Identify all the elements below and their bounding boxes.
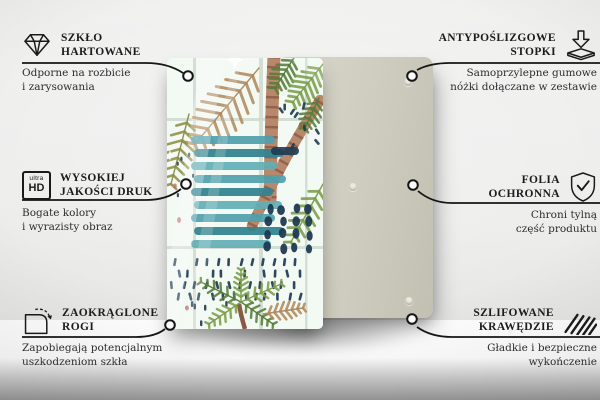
feature-desc-line: część produktu: [397, 223, 597, 237]
adhesive-feet-icon: [565, 30, 597, 61]
feature-desc-line: i wyrazisty obraz: [22, 221, 212, 235]
feature-title-line: KRAWĘDZIE: [473, 320, 554, 334]
feature-title-line: ANTYPOŚLIZGOWE: [439, 31, 556, 45]
feature-desc-line: wykończenie: [397, 356, 597, 370]
feature-title-line: SZKŁO: [61, 31, 141, 45]
ultra-hd-icon: ultra HD: [22, 171, 51, 200]
adhesive-foot: [349, 183, 357, 191]
feature-desc-line: Zapobiegają potencjalnym: [22, 342, 212, 356]
feature-title-line: ROGI: [62, 320, 158, 334]
feature-title-line: JAKOŚCI DRUK: [60, 185, 153, 199]
feature-desc-line: i zarysowania: [22, 81, 212, 95]
feature-desc-line: nóżki dołączane w zestawie: [397, 81, 597, 95]
feature-desc-line: uszkodzeniom szkła: [22, 356, 212, 370]
feature-title-line: SZLIFOWANE: [473, 306, 554, 320]
ultra-hd-icon-text: HD: [29, 183, 45, 194]
feature-desc-line: Bogate kolory: [22, 207, 212, 221]
feature-title-line: HARTOWANE: [61, 45, 141, 59]
feature-protective-film: FOLIA OCHRONNA Chroni tylną część produk…: [397, 170, 597, 236]
diamond-icon: [22, 32, 52, 58]
feature-title-line: WYSOKIEJ: [60, 171, 153, 185]
feature-title-line: FOLIA: [488, 173, 560, 187]
feature-desc-line: Samoprzylepne gumowe: [397, 67, 597, 81]
feature-polished-edges: SZLIFOWANE KRAWĘDZIE Gładkie i bezpieczn…: [397, 303, 597, 369]
feature-title-line: OCHRONNA: [488, 187, 560, 201]
feature-tempered-glass: SZKŁO HARTOWANE Odporne na rozbicie i za…: [22, 28, 212, 94]
feature-desc-line: Gładkie i bezpieczne: [397, 342, 597, 356]
feature-desc-line: Odporne na rozbicie: [22, 67, 212, 81]
feature-title-line: STOPKI: [439, 45, 556, 59]
feature-title-line: ZAOKRĄGLONE: [62, 306, 158, 320]
rounded-corner-icon: [22, 305, 53, 336]
feature-anti-slip-feet: ANTYPOŚLIZGOWE STOPKI Samoprzylepne gumo…: [397, 28, 597, 94]
feature-desc-line: Chroni tylną: [397, 209, 597, 223]
feature-high-quality-print: ultra HD WYSOKIEJ JAKOŚCI DRUK Bogate ko…: [22, 168, 212, 234]
shield-check-icon: [569, 171, 597, 203]
feature-rounded-corners: ZAOKRĄGLONE ROGI Zapobiegają potencjalny…: [22, 303, 212, 369]
hatched-edge-icon: [563, 305, 597, 335]
